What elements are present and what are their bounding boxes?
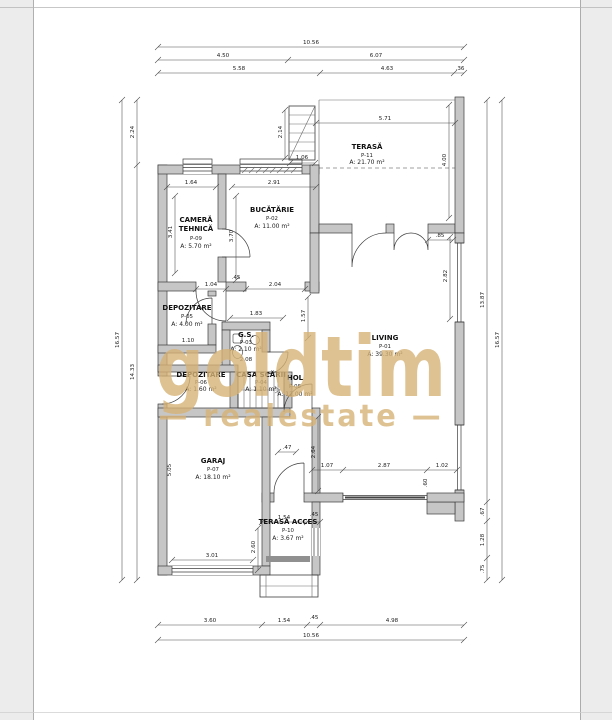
room-name: TERASĂ bbox=[352, 142, 383, 151]
tech-room-window bbox=[183, 159, 212, 174]
dim-top-b1: 5.58 bbox=[233, 66, 246, 72]
dim-bottom-a4: 4.98 bbox=[386, 618, 399, 624]
dim-terasa-h: 4.00 bbox=[442, 153, 448, 166]
door-mat bbox=[266, 556, 310, 562]
room-label-camera-tehnica: CAMERĂ TEHNICĂ P-09 A: 5.70 m² bbox=[179, 215, 214, 250]
room-code: P-02 bbox=[266, 216, 278, 222]
kitchen-window bbox=[240, 159, 302, 174]
room-code: P-10 bbox=[282, 528, 295, 534]
dim-acc-h: 2.60 bbox=[251, 540, 257, 553]
room-area: A: 21.70 m² bbox=[349, 159, 385, 166]
scanned-floorplan-page: 10.56 4.50 6.07 5.58 4.63 .36 3.60 1.54 … bbox=[0, 0, 612, 720]
room-area: A: 18.10 m² bbox=[195, 474, 231, 481]
dim-living-b2: 2.87 bbox=[378, 463, 391, 469]
dim-hall-b: 2.04 bbox=[269, 282, 282, 288]
living-south-window bbox=[343, 493, 427, 502]
room-name: CAMERĂ bbox=[179, 215, 213, 224]
dim-hall-c: .45 bbox=[232, 275, 241, 281]
living-east-window-upper bbox=[455, 243, 464, 322]
room-name: GARAJ bbox=[201, 457, 226, 465]
dim-right-a4: .75 bbox=[480, 564, 486, 573]
terrace-french-doors bbox=[352, 233, 428, 267]
dim-left-a2: 14.33 bbox=[130, 364, 136, 380]
living-east-window-lower bbox=[455, 425, 464, 490]
dim-kitchen-h: 3.70 bbox=[229, 229, 235, 242]
dim-left-total: 16.57 bbox=[115, 332, 121, 348]
dim-living-left-h: 2.64 bbox=[311, 445, 317, 458]
dim-garage-r: .47 bbox=[283, 445, 292, 451]
dim-tech-h: 3.41 bbox=[168, 225, 174, 238]
dim-hall-a: 1.04 bbox=[205, 282, 218, 288]
dim-right-a2: .67 bbox=[480, 507, 486, 516]
dim-kitchen-w: 2.91 bbox=[268, 180, 281, 186]
dim-left-a1: 2.24 bbox=[130, 125, 136, 138]
dim-top-total: 10.56 bbox=[303, 40, 319, 46]
dim-bottom-a1: 3.60 bbox=[204, 618, 217, 624]
dim-living-top-r: .85 bbox=[436, 233, 445, 239]
room-name: DEPOZITARE bbox=[162, 304, 211, 312]
terrace-boundary bbox=[319, 100, 455, 168]
room-label-garaj: GARAJ P-07 A: 18.10 m² bbox=[195, 457, 231, 481]
dim-living-win-h: 2.82 bbox=[443, 270, 449, 282]
dim-gs-w: 1.83 bbox=[250, 311, 263, 317]
room-code: P-07 bbox=[207, 467, 219, 473]
dim-bottom-a2: 1.54 bbox=[278, 618, 291, 624]
dim-garage-h: 5.05 bbox=[167, 463, 173, 476]
room-area: A: 11.00 m² bbox=[254, 223, 290, 230]
dim-bottom-a3: .45 bbox=[310, 615, 319, 621]
entry-door bbox=[274, 463, 304, 493]
dim-living-b4: .60 bbox=[423, 478, 429, 487]
porch-side-window bbox=[312, 528, 320, 556]
dim-right-total: 16.57 bbox=[495, 332, 501, 348]
room-area: A: 5.70 m² bbox=[180, 243, 212, 250]
dim-tech-w: 1.64 bbox=[185, 180, 198, 186]
dim-right-a1: 13.87 bbox=[480, 292, 486, 308]
dim-terasa-w: 5.71 bbox=[379, 116, 392, 122]
room-label-terasa: TERASĂ P-11 A: 21.70 m² bbox=[349, 142, 385, 166]
dim-top-a1: 4.50 bbox=[217, 53, 230, 59]
dim-garage-w: 3.01 bbox=[206, 553, 219, 559]
dim-bottom-total: 10.56 bbox=[303, 633, 319, 639]
dim-living-b1: 1.07 bbox=[321, 463, 334, 469]
watermark-tagline: — realestate — bbox=[159, 399, 444, 434]
dim-stair-w: 1.06 bbox=[296, 155, 309, 161]
room-code: P-09 bbox=[190, 236, 203, 242]
dim-stair-h: 2.14 bbox=[278, 125, 284, 138]
room-name: TERASĂ ACCES bbox=[259, 517, 318, 526]
floor-plan-drawing: 10.56 4.50 6.07 5.58 4.63 .36 3.60 1.54 … bbox=[0, 0, 612, 720]
watermark: goldtim — realestate — bbox=[156, 318, 446, 434]
room-name: TEHNICĂ bbox=[179, 224, 214, 233]
room-area: A: 3.67 m² bbox=[272, 535, 304, 542]
room-name: BUCĂTĂRIE bbox=[250, 205, 294, 214]
terrace-stair bbox=[289, 106, 315, 160]
dim-top-b3: .36 bbox=[456, 66, 465, 72]
dim-top-b2: 4.63 bbox=[381, 66, 394, 72]
room-label-bucatarie: BUCĂTĂRIE P-02 A: 11.00 m² bbox=[250, 205, 294, 230]
dim-right-a3: 1.28 bbox=[480, 533, 486, 546]
dim-top-a2: 6.07 bbox=[370, 53, 383, 59]
dim-living-b3: 1.02 bbox=[436, 463, 448, 469]
garage-door-opening bbox=[172, 566, 253, 575]
